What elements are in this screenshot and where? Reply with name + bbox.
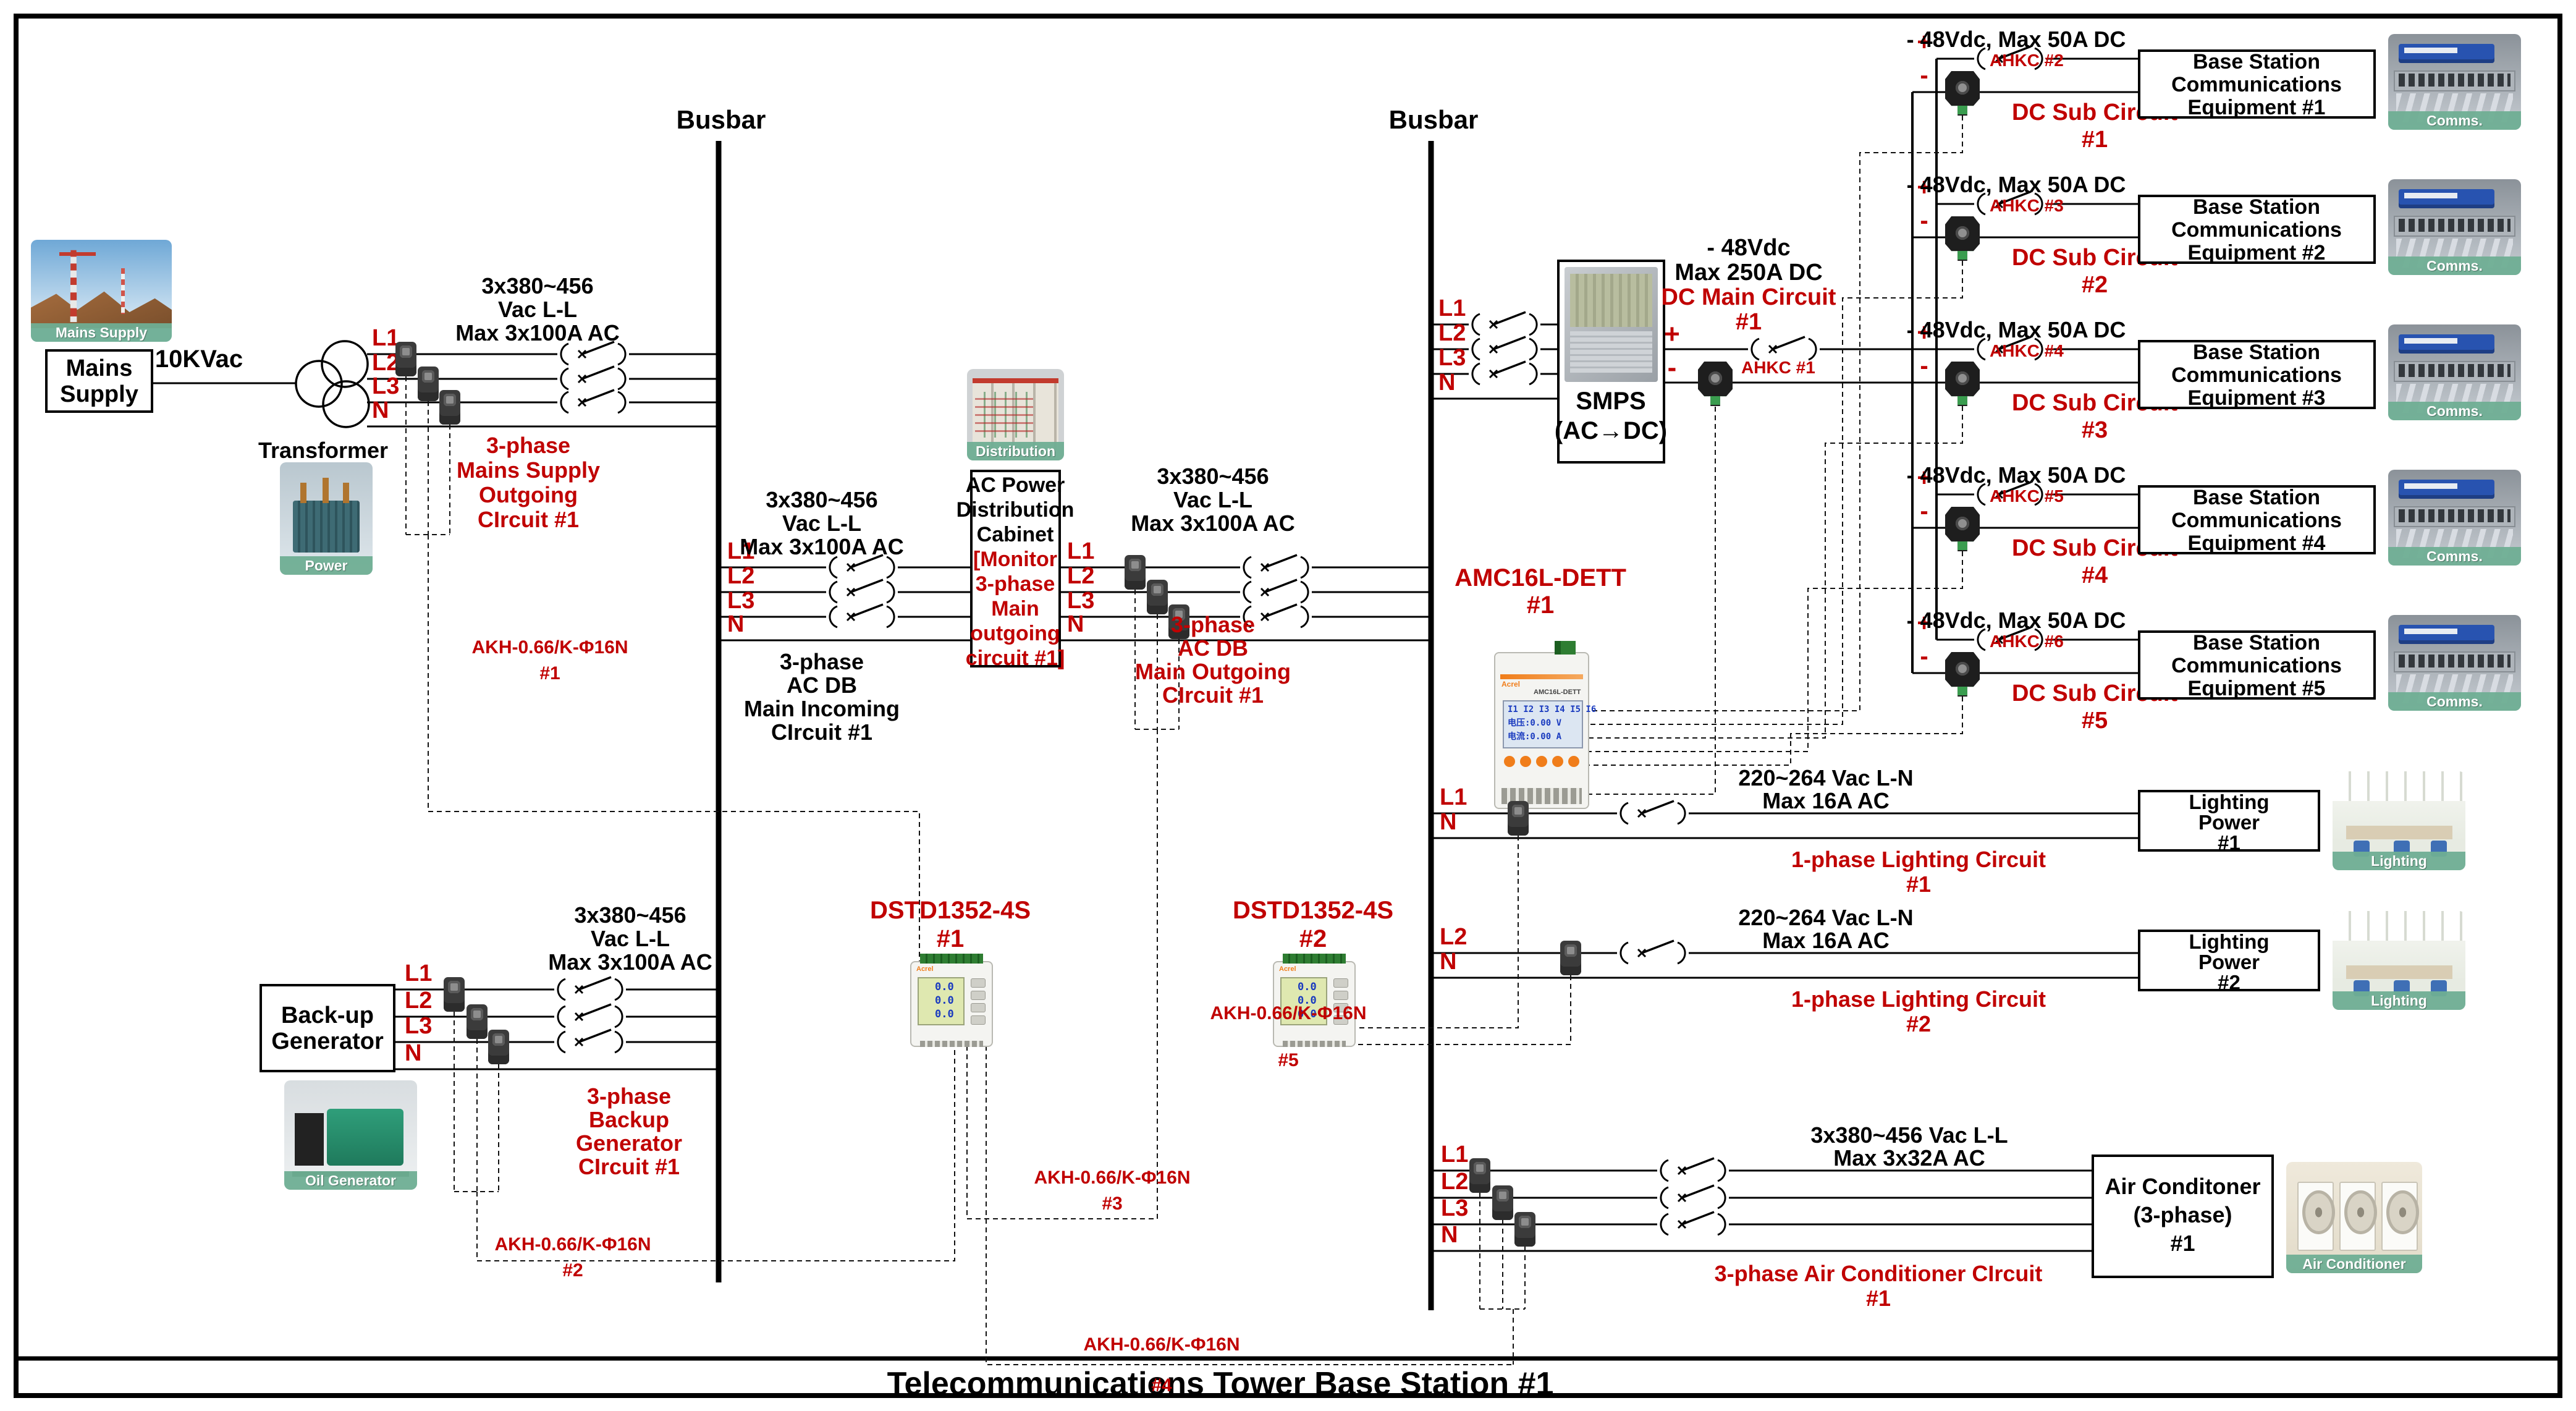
photo-caption: Power Transformer — [280, 556, 373, 575]
current-transformer-icon — [1125, 555, 1146, 590]
meter-button — [1504, 756, 1515, 767]
equipment-box-label: Communications — [2171, 510, 2342, 532]
akh-label: AKH-0.66/K-Φ16N — [494, 1235, 651, 1255]
ac-unit — [2339, 1182, 2376, 1251]
incoming-spec-label: Max 3x100A AC — [740, 535, 903, 559]
router-face — [2404, 193, 2457, 198]
switch-ports — [2399, 509, 2511, 523]
router-face — [2404, 48, 2457, 53]
mains-supply-box-label: Mains — [66, 357, 133, 381]
lighting-photo: Lighting — [2333, 911, 2465, 1010]
radiator — [295, 1113, 324, 1166]
phase-label: N — [1067, 612, 1084, 637]
phase-label: L2 — [1441, 1170, 1468, 1195]
minus-label: - — [1920, 208, 1928, 234]
sensor-hole — [1956, 517, 1969, 530]
mains-spec-label: Vac L-L — [498, 298, 577, 321]
incoming-spec-label: 3x380~456 — [766, 488, 877, 512]
comms-equipment-photo: Comms. Equipment — [2388, 324, 2521, 420]
dc-main-spec-label: Max 250A DC — [1674, 261, 1822, 286]
equipment-box-label: Equipment #2 — [2188, 242, 2326, 265]
lighting-circuit-label: 1-phase Lighting Circuit — [1791, 848, 2046, 871]
lighting-power-box-label: Power — [2198, 952, 2260, 973]
mountains — [31, 282, 172, 328]
lcd-row: 电流:0.00 A — [1508, 732, 1561, 742]
ahkc-label: AHKC #1 — [1741, 358, 1815, 376]
desks — [2346, 965, 2452, 979]
phase-label: N — [405, 1041, 421, 1066]
cabinet-box-label: 3-phase — [976, 574, 1055, 596]
meter-button — [1333, 978, 1348, 988]
photo-caption: Comms. Equipment — [2388, 547, 2521, 566]
dc-sub-num-label: #2 — [2082, 273, 2108, 298]
phase-label: L1 — [1067, 540, 1094, 564]
phase-label: L3 — [1067, 589, 1094, 614]
page-title: Telecommunications Tower Base Station #1 — [887, 1367, 1554, 1401]
current-transformer-icon — [467, 1004, 488, 1039]
dstd2-label: DSTD1352-4S — [1233, 897, 1393, 923]
lighting-circuit-label: 1-phase Lighting Circuit — [1791, 988, 2046, 1011]
hall-sensor-icon — [1945, 652, 1980, 697]
meter-button — [1552, 756, 1563, 767]
incoming-circuit-label: 3-phase — [780, 650, 864, 674]
dc-sub-spec-label: - 48Vdc, Max 50A DC — [1907, 173, 2126, 197]
phase-label: N — [1438, 371, 1455, 396]
equipment-box-label: Base Station — [2193, 632, 2320, 655]
generator-spec-label: Max 3x100A AC — [548, 951, 712, 974]
ct-hole — [1565, 944, 1577, 957]
generator-spec-label: Vac L-L — [591, 927, 670, 951]
outgoing-circuit-label: CIrcuit #1 — [1162, 684, 1264, 707]
bushing — [300, 483, 306, 503]
psu-chassis — [1570, 331, 1652, 373]
mains-circuit-label: CIrcuit #1 — [478, 508, 579, 532]
ct-hole — [422, 370, 434, 383]
cabinet-top-stripe — [973, 378, 1058, 383]
dc-sub-num-label: #3 — [2082, 418, 2108, 443]
incoming-circuit-label: AC DB — [787, 674, 857, 697]
lcd-value: 0.0 — [935, 1009, 954, 1020]
router — [2399, 44, 2494, 63]
outgoing-spec-label: Max 3x100A AC — [1131, 512, 1294, 535]
generator-spec-label: 3x380~456 — [574, 904, 686, 927]
router-face — [2404, 338, 2457, 344]
sensor-terminal — [1951, 541, 1974, 550]
brand-label: Acrel — [1501, 680, 1520, 689]
dc-sub-spec-label: - 48Vdc, Max 50A DC — [1907, 609, 2126, 632]
akh-num-label: #1 — [539, 664, 560, 684]
terminal-block — [1555, 641, 1576, 655]
ac-fan — [2386, 1190, 2419, 1234]
photo-caption: Lighting — [2333, 991, 2465, 1010]
smps-label: SMPS — [1576, 388, 1645, 414]
cabinet-box-label: circuit #1] — [966, 648, 1065, 670]
equipment-box-label: Communications — [2171, 655, 2342, 677]
ct-hole — [1151, 583, 1163, 596]
lighting-power-box-label: Power — [2198, 812, 2260, 834]
current-transformer-icon — [395, 342, 416, 376]
amc-num: #1 — [1527, 592, 1555, 618]
router-face — [2404, 629, 2457, 634]
equipment-box-label: Equipment #1 — [2188, 97, 2326, 119]
tower — [121, 268, 125, 314]
orange-stripe — [1500, 674, 1583, 679]
lighting-spec-label: 220~264 Vac L-N — [1738, 766, 1913, 790]
lcd-value: 0.0 — [935, 996, 954, 1007]
meter-button — [971, 991, 986, 1000]
ahkc-label: AHKC #3 — [1990, 197, 2064, 214]
tower-arm — [59, 252, 96, 256]
lighting-circuit-label: #2 — [1906, 1012, 1931, 1036]
cabinet-box-label: Distribution — [956, 499, 1075, 522]
minus-label: - — [1668, 354, 1677, 382]
sensor-terminal — [1704, 396, 1726, 405]
ct-hole — [1129, 559, 1141, 571]
lighting-power-box-label: Lighting — [2189, 931, 2269, 953]
mains-circuit-label: Mains Supply — [457, 459, 600, 482]
lighting-power-box-label: Lighting — [2189, 792, 2269, 813]
ct-hole — [471, 1008, 483, 1020]
equipment-box-label: Communications — [2171, 74, 2342, 96]
phase-label: L1 — [1438, 297, 1466, 321]
lcd-row: 电压:0.00 V — [1508, 719, 1561, 728]
akh-num-label: #2 — [562, 1261, 583, 1281]
current-transformer-icon — [1508, 801, 1529, 836]
current-transformer-icon — [1147, 580, 1168, 614]
transformer-photo: Power Transformer — [280, 462, 373, 575]
backup-generator-box-label: Generator — [271, 1030, 384, 1054]
hall-sensor-icon — [1945, 71, 1980, 116]
generator-circuit-label: CIrcuit #1 — [578, 1155, 680, 1179]
aircon-spec-label: Max 3x32A AC — [1833, 1146, 1985, 1170]
meter-button — [1568, 756, 1579, 767]
ac-fan — [2344, 1190, 2377, 1234]
switch-ports — [2399, 655, 2511, 668]
hall-sensor-icon — [1945, 507, 1980, 551]
ac-unit — [2381, 1182, 2418, 1251]
akh-label: AKH-0.66/K-Φ16N — [1034, 1168, 1190, 1188]
cabinet-box-label: Main — [991, 598, 1039, 621]
equipment-box-label: Base Station — [2193, 342, 2320, 364]
incoming-circuit-label: CIrcuit #1 — [771, 721, 872, 744]
equipment-box-label: Equipment #4 — [2188, 533, 2326, 555]
mains-spec-label: 3x380~456 — [481, 274, 593, 298]
ahkc-label: AHKC #4 — [1990, 342, 2064, 360]
outgoing-circuit-label: 3-phase — [1171, 613, 1255, 637]
mains-voltage-label: 10KVac — [155, 346, 243, 372]
akh-label: AKH-0.66/K-Φ16N — [1210, 1004, 1366, 1023]
hall-sensor-icon — [1698, 362, 1733, 406]
equipment-box-label: Communications — [2171, 365, 2342, 387]
aircon-spec-label: 3x380~456 Vac L-L — [1810, 1124, 2008, 1147]
lighting-spec-label: Max 16A AC — [1762, 929, 1889, 952]
photo-caption: Comms. Equipment — [2388, 111, 2521, 130]
lcd-row: I1 I2 I3 I4 I5 I6 — [1508, 705, 1596, 714]
phase-label: L3 — [405, 1014, 432, 1039]
ahkc-label: AHKC #2 — [1990, 51, 2064, 69]
lighting-power-box-label: #1 — [2218, 833, 2240, 854]
phase-label: N — [1440, 950, 1456, 975]
brand-label: Acrel — [1279, 966, 1296, 973]
mains-supply-box-label: Supply — [60, 383, 138, 407]
ac-unit — [2297, 1182, 2334, 1251]
sensor-terminal — [1951, 251, 1974, 260]
current-transformer-icon — [1469, 1158, 1490, 1193]
mains-spec-label: Max 3x100A AC — [455, 321, 619, 345]
smps-label: (AC→DC) — [1555, 418, 1667, 444]
sensor-hole — [1956, 81, 1969, 95]
phase-label: N — [372, 399, 389, 423]
ac-fan — [2302, 1190, 2335, 1234]
equipment-box-label: Equipment #5 — [2188, 678, 2326, 700]
sensor-terminal — [1951, 106, 1974, 114]
ct-hole — [448, 981, 460, 993]
akh-label: AKH-0.66/K-Φ16N — [471, 638, 628, 658]
air-conditioner-photo: Air Conditioner — [2286, 1162, 2422, 1273]
comms-equipment-photo: Comms. Equipment — [2388, 615, 2521, 711]
equipment-box-label: Equipment #3 — [2188, 388, 2326, 410]
air-conditioner-box-label: #1 — [2170, 1232, 2195, 1255]
distribution-cabinet-photo: Distribution Cabinet — [967, 369, 1064, 460]
aircon-circuit-label: 3-phase Air Conditioner CIrcuit — [1715, 1262, 2043, 1286]
tower — [70, 250, 77, 322]
dc-main-circuit-label: #1 — [1736, 310, 1762, 335]
generator-circuit-label: Generator — [576, 1132, 682, 1155]
dstd1-num: #1 — [937, 926, 965, 952]
router — [2399, 625, 2494, 644]
terminal-strip — [920, 1041, 983, 1047]
meter-button — [1520, 756, 1531, 767]
amc-label: AMC16L-DETT — [1455, 565, 1626, 591]
dc-main-spec-label: - 48Vdc — [1707, 236, 1790, 261]
phase-label: L2 — [405, 989, 432, 1014]
oil-generator-photo: Oil Generator — [284, 1080, 417, 1190]
akh-num-label: #3 — [1102, 1194, 1122, 1214]
amc-meter-device: AcrelAMC16L-DETTI1 I2 I3 I4 I5 I6电压:0.00… — [1494, 652, 1589, 809]
phase-label: N — [1441, 1223, 1458, 1248]
comms-equipment-photo: Comms. Equipment — [2388, 179, 2521, 275]
phase-label: L2 — [1440, 925, 1467, 950]
phase-label: L3 — [1441, 1197, 1468, 1221]
akh-num-label: #4 — [1151, 1376, 1172, 1396]
mains-circuit-label: Outgoing — [479, 483, 578, 507]
switch-ports — [2399, 364, 2511, 378]
ahkc-label: AHKC #5 — [1990, 487, 2064, 505]
lighting-photo: Lighting — [2333, 771, 2465, 870]
minus-label: - — [1920, 353, 1928, 379]
outgoing-circuit-label: Main Outgoing — [1135, 660, 1291, 684]
router — [2399, 334, 2494, 354]
ct-hole — [1519, 1216, 1531, 1228]
photo-caption: Comms. Equipment — [2388, 256, 2521, 275]
lighting-circuit-label: #1 — [1906, 873, 1931, 896]
equipment-box-label: Base Station — [2193, 197, 2320, 219]
ceiling — [2333, 911, 2465, 941]
busbar-2-label: Busbar — [1389, 106, 1479, 133]
minus-label: - — [1920, 62, 1928, 88]
cabinet-box-label: [Monitor — [973, 549, 1057, 571]
dc-main-circuit-label: DC Main Circuit — [1662, 286, 1836, 310]
terminal-strip — [1283, 1041, 1346, 1047]
current-transformer-icon — [1560, 941, 1581, 975]
equipment-box-label: Base Station — [2193, 487, 2320, 509]
dc-sub-spec-label: - 48Vdc, Max 50A DC — [1907, 28, 2126, 51]
hall-sensor-icon — [1945, 362, 1980, 406]
lighting-power-box-label: #2 — [2218, 972, 2240, 994]
incoming-circuit-label: Main Incoming — [744, 697, 900, 721]
cabinet-box-label: outgoing — [970, 623, 1060, 645]
cabinet-box-label: AC Power — [966, 475, 1065, 497]
current-transformer-icon — [488, 1030, 509, 1064]
dstd-meter-device: Acrel0.00.00.0 — [910, 961, 993, 1047]
dc-sub-spec-label: - 48Vdc, Max 50A DC — [1907, 318, 2126, 342]
current-transformer-icon — [439, 390, 460, 425]
photo-caption: Distribution Cabinet — [967, 442, 1064, 460]
phase-label: L2 — [1067, 564, 1094, 589]
sensor-hole — [1956, 371, 1969, 385]
lcd-value: 0.0 — [935, 982, 954, 993]
photo-caption: Comms. Equipment — [2388, 692, 2521, 711]
router-face — [2404, 483, 2457, 489]
brand-label: Acrel — [916, 966, 934, 973]
meter-button — [1536, 756, 1547, 767]
meter-button — [1333, 991, 1348, 1000]
terminal-strip — [1283, 954, 1346, 964]
current-transformer-icon — [1514, 1212, 1535, 1247]
backup-generator-box-label: Back-up — [281, 1004, 374, 1028]
ct-hole — [444, 394, 456, 406]
ahkc-label: AHKC #6 — [1990, 632, 2064, 650]
photo-caption: Comms. Equipment — [2388, 402, 2521, 420]
cabinet-box-label: Cabinet — [977, 524, 1054, 546]
telecom-base-station-diagram: Telecommunications Tower Base Station #1… — [0, 0, 2576, 1411]
phase-label: N — [727, 612, 744, 637]
phase-label: L2 — [1438, 321, 1466, 346]
ct-hole — [1512, 805, 1524, 817]
photo-caption: Air Conditioner — [2286, 1255, 2422, 1273]
router — [2399, 189, 2494, 208]
switch-ports — [2399, 219, 2511, 232]
phase-label: L3 — [372, 375, 399, 399]
ceiling — [2333, 771, 2465, 801]
phase-label: N — [1440, 810, 1456, 835]
comms-equipment-photo: Comms. Equipment — [2388, 34, 2521, 130]
bushing — [343, 483, 349, 503]
akh-label: AKH-0.66/K-Φ16N — [1083, 1335, 1239, 1355]
dc-sub-num-label: #4 — [2082, 564, 2108, 588]
phase-label: L1 — [1440, 786, 1467, 810]
current-transformer-icon — [1492, 1185, 1513, 1220]
akh-num-label: #5 — [1278, 1051, 1298, 1070]
smps-photo — [1565, 267, 1658, 382]
generator-circuit-label: 3-phase — [587, 1085, 671, 1108]
desks — [2346, 826, 2452, 839]
meter-lcd: 0.00.00.0 — [918, 977, 965, 1025]
photo-caption: Mains Supply — [31, 323, 172, 342]
cabinet-switches — [975, 392, 1033, 438]
switch-ports — [2399, 74, 2511, 87]
hall-sensor-icon — [1945, 216, 1980, 261]
ct-hole — [1497, 1189, 1509, 1201]
current-transformer-icon — [418, 367, 439, 401]
ct-hole — [492, 1033, 505, 1046]
plus-label: + — [1664, 320, 1680, 349]
dc-sub-num-label: #1 — [2082, 128, 2108, 153]
ct-hole — [400, 345, 412, 358]
photo-caption: Oil Generator — [284, 1171, 417, 1190]
phase-label: L1 — [405, 962, 432, 986]
dc-sub-spec-label: - 48Vdc, Max 50A DC — [1907, 464, 2126, 487]
mains-circuit-label: 3-phase — [486, 434, 570, 457]
current-transformer-icon — [444, 977, 465, 1012]
outgoing-spec-label: Vac L-L — [1173, 488, 1252, 512]
dc-sub-num-label: #5 — [2082, 709, 2108, 734]
model-label: AMC16L-DETT — [1534, 689, 1581, 697]
bushing — [323, 478, 329, 502]
phase-label: L2 — [727, 564, 754, 589]
air-conditioner-box-label: Air Conditoner — [2105, 1175, 2261, 1198]
generator-circuit-label: Backup — [589, 1108, 669, 1132]
meter-button — [971, 1003, 986, 1012]
sensor-terminal — [1951, 687, 1974, 695]
dstd1-label: DSTD1352-4S — [870, 897, 1031, 923]
dstd2-num: #2 — [1299, 926, 1327, 952]
router — [2399, 480, 2494, 499]
terminal-strip — [920, 954, 983, 964]
transformer-label: Transformer — [258, 439, 388, 462]
lighting-spec-label: 220~264 Vac L-N — [1738, 906, 1913, 930]
meter-button — [971, 978, 986, 988]
meter-lcd: I1 I2 I3 I4 I5 I6电压:0.00 V电流:0.00 A — [1503, 700, 1583, 748]
sensor-terminal — [1951, 396, 1974, 405]
photo-caption: Lighting — [2333, 852, 2465, 870]
transformer-body — [293, 501, 360, 553]
air-conditioner-box-label: (3-phase) — [2133, 1203, 2232, 1227]
mains-supply-photo: Mains Supply — [31, 240, 172, 342]
ct-hole — [1474, 1162, 1486, 1174]
outgoing-circuit-label: AC DB — [1178, 637, 1248, 660]
sensor-hole — [1708, 371, 1722, 385]
outgoing-spec-label: 3x380~456 — [1157, 465, 1269, 488]
engine — [327, 1109, 404, 1166]
incoming-spec-label: Vac L-L — [782, 512, 861, 535]
lighting-spec-label: Max 16A AC — [1762, 789, 1889, 813]
comms-equipment-photo: Comms. Equipment — [2388, 470, 2521, 566]
sensor-hole — [1956, 226, 1969, 240]
meter-button — [971, 1015, 986, 1025]
busbar-1-label: Busbar — [677, 106, 766, 133]
phase-label: L3 — [727, 589, 754, 614]
equipment-box-label: Communications — [2171, 219, 2342, 242]
sensor-hole — [1956, 662, 1969, 676]
equipment-box-label: Base Station — [2193, 51, 2320, 74]
phase-label: L3 — [1438, 346, 1466, 371]
phase-label: L1 — [1441, 1143, 1468, 1167]
minus-label: - — [1920, 643, 1928, 669]
psu-board — [1570, 274, 1652, 327]
aircon-circuit-label: #1 — [1866, 1287, 1891, 1310]
minus-label: - — [1920, 498, 1928, 524]
lcd-value: 0.0 — [1298, 982, 1317, 993]
